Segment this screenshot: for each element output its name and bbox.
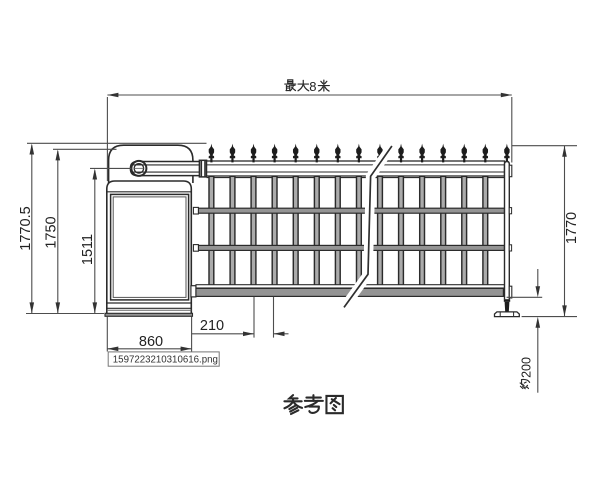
svg-text:1597223210310616.png: 1597223210310616.png bbox=[113, 355, 218, 366]
svg-text:860: 860 bbox=[139, 334, 163, 350]
svg-text:1511: 1511 bbox=[80, 234, 96, 265]
svg-text:1770: 1770 bbox=[564, 212, 580, 244]
svg-text:8: 8 bbox=[309, 79, 316, 94]
svg-text:1770.5: 1770.5 bbox=[18, 206, 34, 250]
svg-text:1750: 1750 bbox=[43, 216, 59, 248]
svg-text:210: 210 bbox=[200, 318, 224, 334]
svg-text:200: 200 bbox=[520, 357, 534, 378]
